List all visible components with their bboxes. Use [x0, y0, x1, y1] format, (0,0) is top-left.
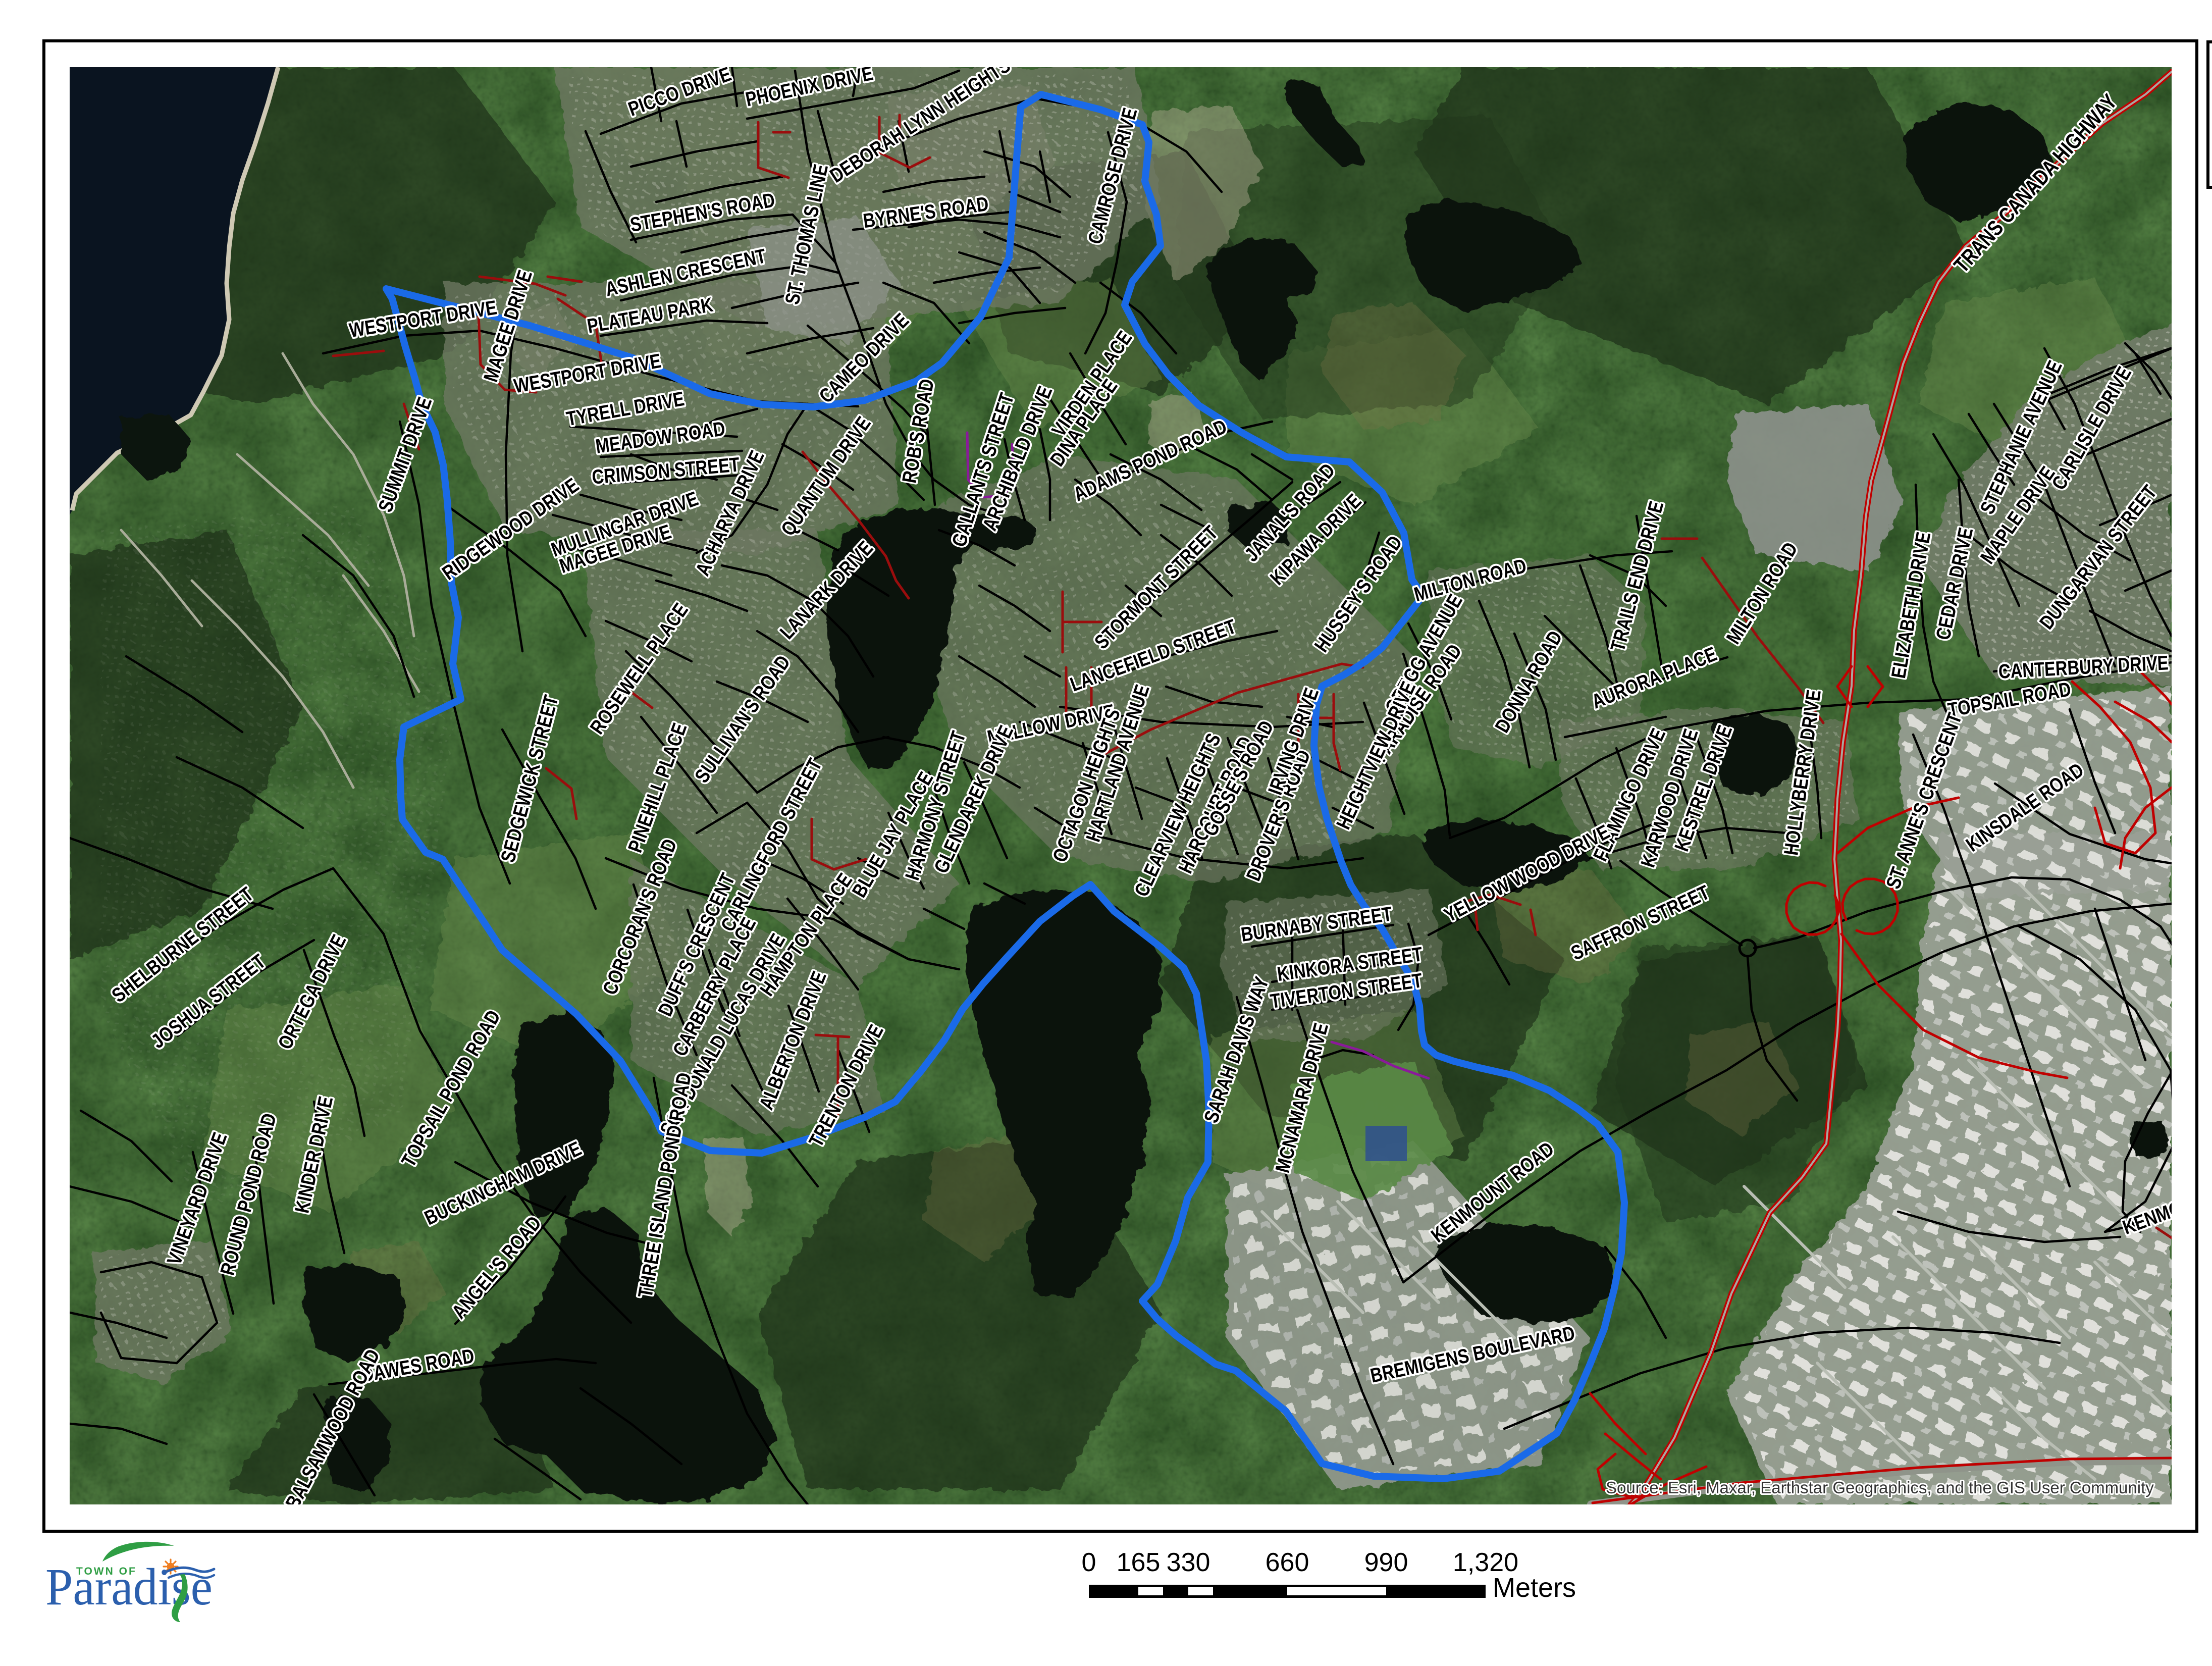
svg-text:Meters: Meters	[1493, 1573, 1576, 1603]
svg-text:165: 165	[1117, 1548, 1161, 1577]
svg-text:990: 990	[1364, 1548, 1408, 1577]
svg-text:0: 0	[1082, 1548, 1096, 1577]
svg-text:330: 330	[1167, 1548, 1210, 1577]
svg-text:Source: Esri, Maxar, Earthstar: Source: Esri, Maxar, Earthstar Geographi…	[1606, 1478, 2154, 1497]
svg-text:660: 660	[1266, 1548, 1309, 1577]
